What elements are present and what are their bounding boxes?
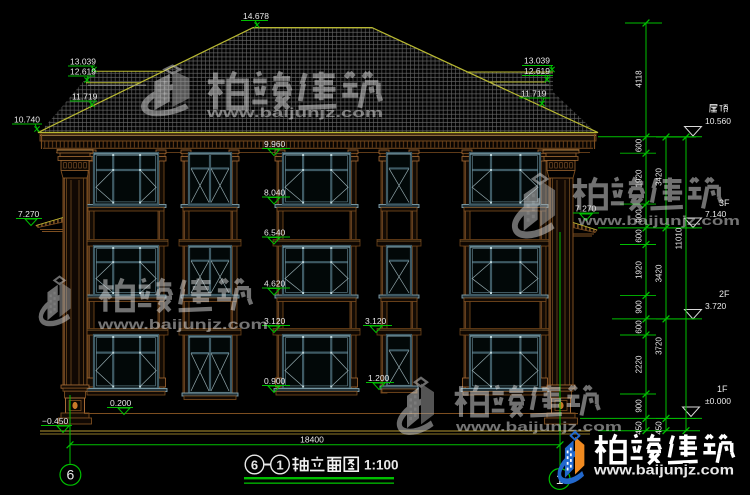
svg-text:www.baijunjz.com: www.baijunjz.com — [97, 316, 268, 332]
svg-text:0.900: 0.900 — [264, 376, 286, 386]
svg-text:13.039: 13.039 — [524, 56, 550, 66]
svg-text:3720: 3720 — [655, 337, 664, 355]
svg-text:450: 450 — [635, 421, 644, 435]
svg-text:3.120: 3.120 — [365, 316, 387, 326]
svg-text:900: 900 — [635, 399, 644, 413]
svg-text:9.960: 9.960 — [264, 139, 286, 149]
svg-text:3420: 3420 — [655, 264, 664, 282]
svg-text:13.039: 13.039 — [70, 57, 96, 67]
svg-text:±0.000: ±0.000 — [705, 396, 731, 406]
svg-text:6.540: 6.540 — [264, 228, 286, 238]
svg-text:900: 900 — [635, 300, 644, 314]
svg-text:11.719: 11.719 — [521, 89, 547, 99]
svg-text:6: 6 — [67, 467, 75, 483]
svg-text:11.719: 11.719 — [72, 92, 98, 102]
svg-text:4.620: 4.620 — [264, 279, 286, 289]
svg-text:6: 6 — [251, 457, 258, 472]
svg-text:1F: 1F — [717, 384, 728, 394]
svg-text:0.200: 0.200 — [110, 398, 132, 408]
svg-text:www.baijunjz.com: www.baijunjz.com — [205, 105, 383, 120]
svg-text:1:100: 1:100 — [364, 458, 399, 473]
svg-text:7.270: 7.270 — [18, 209, 40, 219]
svg-text:2220: 2220 — [635, 355, 644, 373]
svg-text:8.040: 8.040 — [264, 188, 286, 198]
svg-text:18400: 18400 — [300, 435, 324, 445]
svg-text:−0.450: −0.450 — [42, 416, 69, 426]
svg-text:10.560: 10.560 — [705, 116, 731, 126]
svg-text:www.baijunjz.com: www.baijunjz.com — [576, 214, 740, 228]
svg-text:4118: 4118 — [635, 70, 644, 88]
svg-text:11010: 11010 — [675, 227, 684, 249]
svg-text:600: 600 — [635, 138, 644, 152]
svg-text:14.678: 14.678 — [243, 11, 269, 21]
svg-text:2F: 2F — [719, 289, 730, 299]
svg-text:600: 600 — [635, 229, 644, 243]
svg-text:3.720: 3.720 — [705, 301, 727, 311]
svg-text:1.200: 1.200 — [368, 373, 390, 383]
svg-text:1: 1 — [276, 457, 283, 472]
svg-text:www.baijunjz.com: www.baijunjz.com — [454, 420, 622, 434]
svg-text:12.619: 12.619 — [70, 67, 96, 77]
svg-text:10.740: 10.740 — [14, 115, 40, 125]
svg-text:www.baijunjz.com: www.baijunjz.com — [593, 463, 734, 478]
svg-text:1920: 1920 — [635, 261, 644, 279]
svg-text:600: 600 — [635, 320, 644, 334]
svg-text:12.619: 12.619 — [524, 66, 550, 76]
svg-text:450: 450 — [655, 421, 664, 435]
